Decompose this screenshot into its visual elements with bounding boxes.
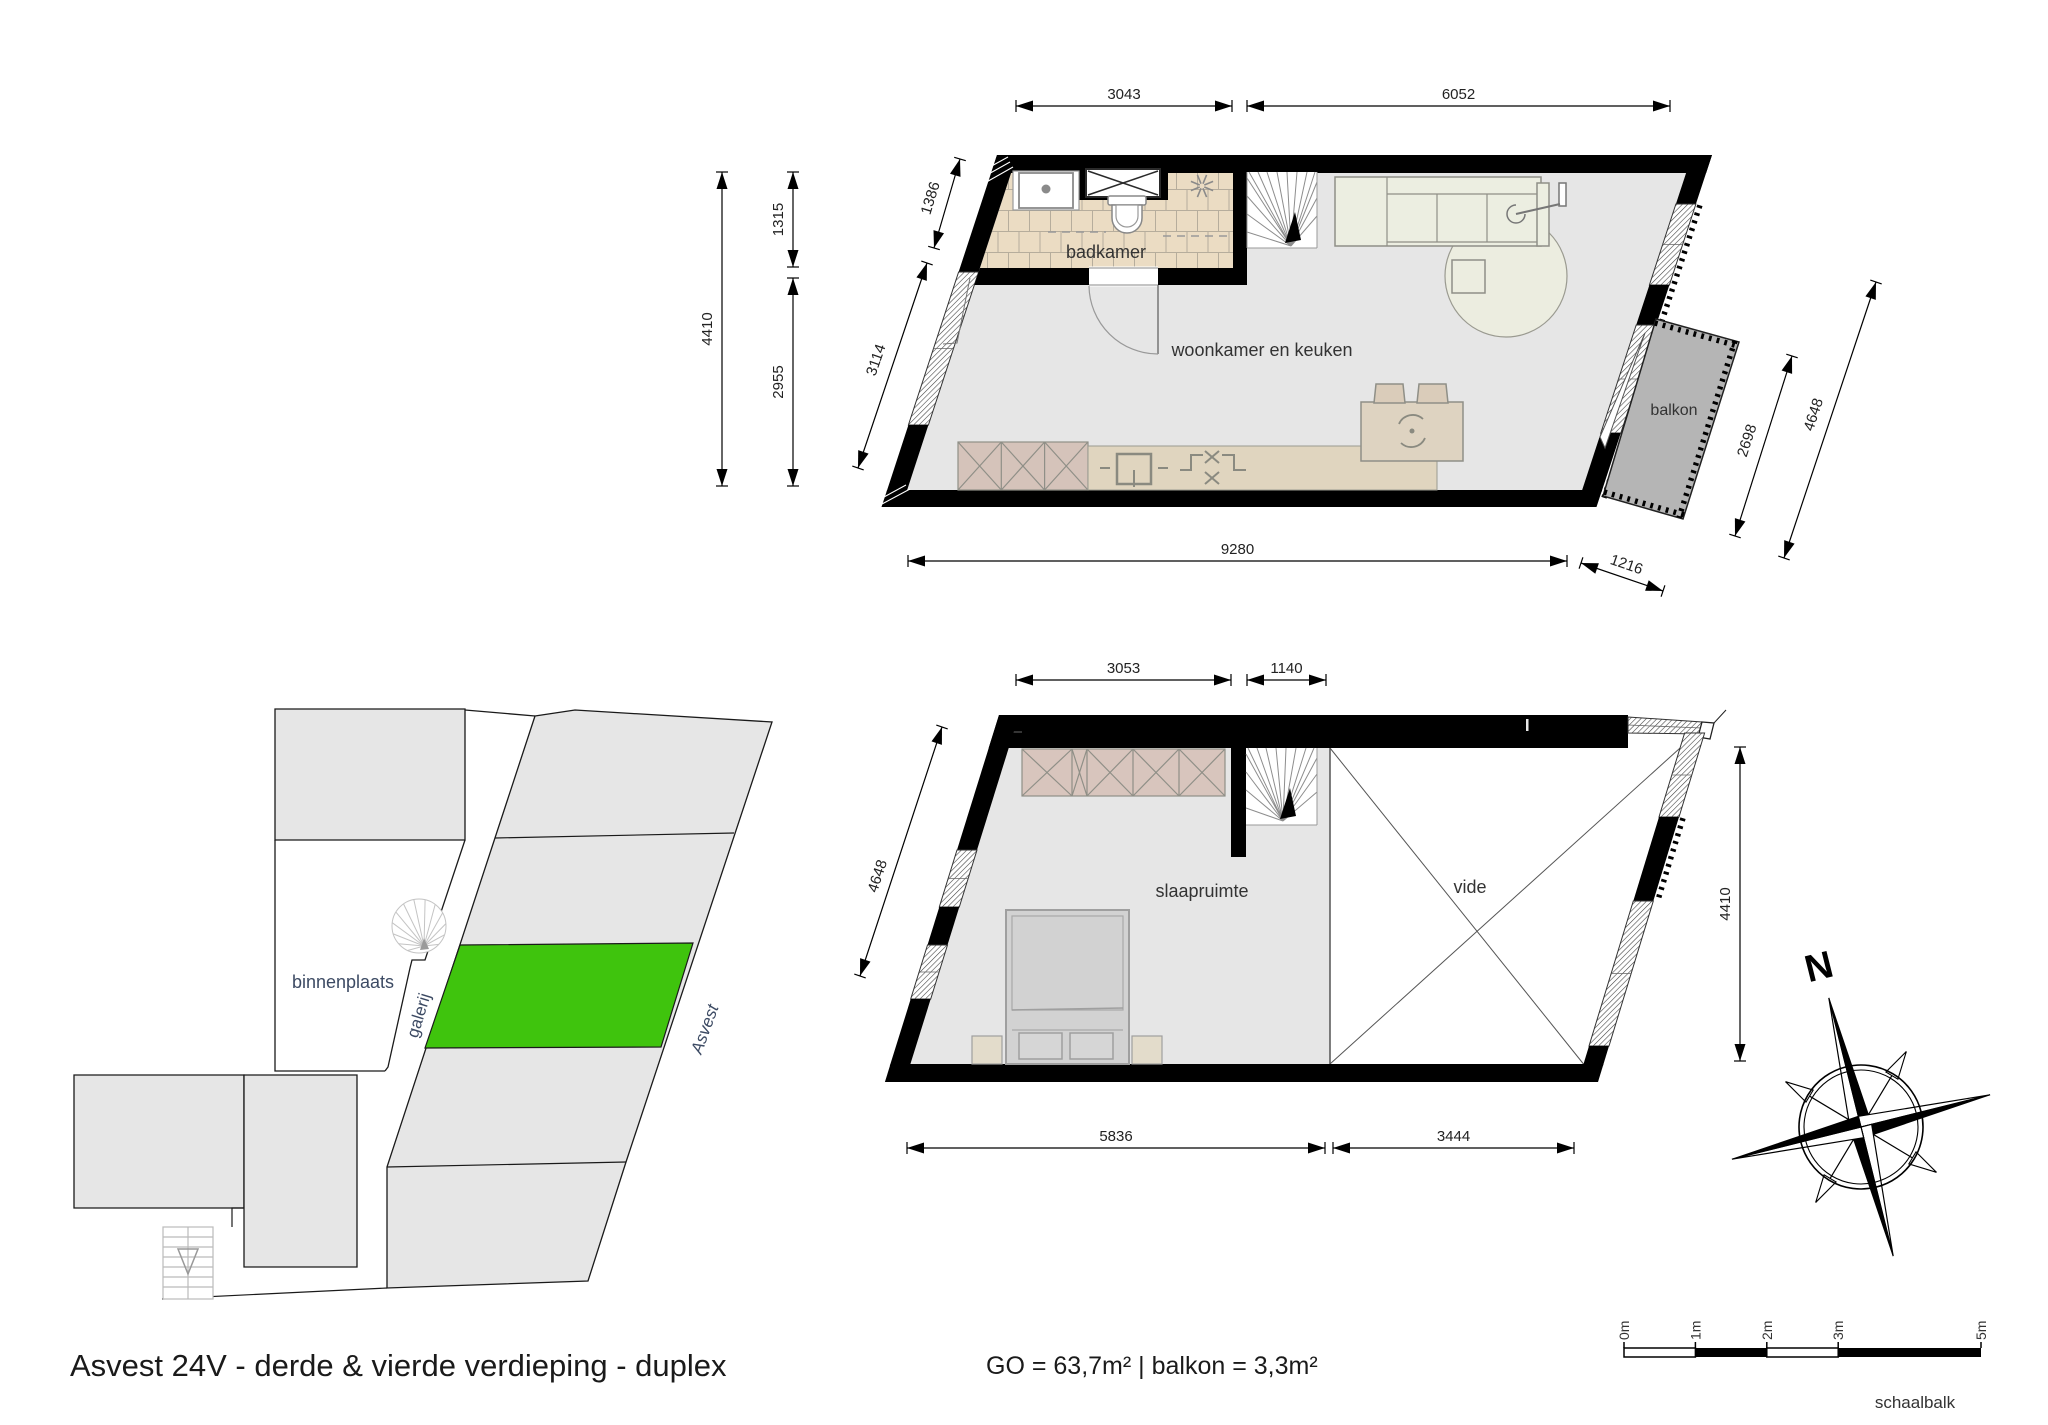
- svg-text:9280: 9280: [1221, 541, 1254, 558]
- svg-text:vide: vide: [1453, 877, 1486, 897]
- svg-text:3053: 3053: [1107, 660, 1140, 677]
- svg-text:4410: 4410: [699, 312, 716, 345]
- svg-text:2955: 2955: [770, 365, 787, 398]
- svg-text:6052: 6052: [1442, 86, 1475, 103]
- svg-text:woonkamer en keuken: woonkamer en keuken: [1170, 340, 1352, 360]
- svg-text:3444: 3444: [1437, 1128, 1470, 1145]
- svg-text:balkon: balkon: [1650, 402, 1697, 419]
- svg-text:badkamer: badkamer: [1066, 242, 1146, 262]
- svg-text:2m: 2m: [1759, 1321, 1775, 1340]
- svg-text:5836: 5836: [1099, 1128, 1132, 1145]
- svg-text:5m: 5m: [1973, 1321, 1989, 1340]
- svg-text:1315: 1315: [770, 203, 787, 236]
- svg-text:schaalbalk: schaalbalk: [1875, 1393, 1956, 1412]
- svg-text:slaapruimte: slaapruimte: [1155, 881, 1248, 901]
- svg-text:binnenplaats: binnenplaats: [292, 972, 394, 992]
- svg-text:3m: 3m: [1830, 1321, 1846, 1340]
- svg-text:1m: 1m: [1687, 1321, 1703, 1340]
- svg-text:Asvest 24V - derde & vierde ve: Asvest 24V - derde & vierde verdieping -…: [70, 1348, 727, 1383]
- svg-text:1140: 1140: [1270, 660, 1302, 677]
- svg-text:GO = 63,7m² | balkon = 3,3m²: GO = 63,7m² | balkon = 3,3m²: [986, 1352, 1318, 1380]
- svg-text:3043: 3043: [1107, 86, 1140, 103]
- svg-text:4410: 4410: [1717, 887, 1734, 920]
- svg-text:0m: 0m: [1616, 1321, 1632, 1340]
